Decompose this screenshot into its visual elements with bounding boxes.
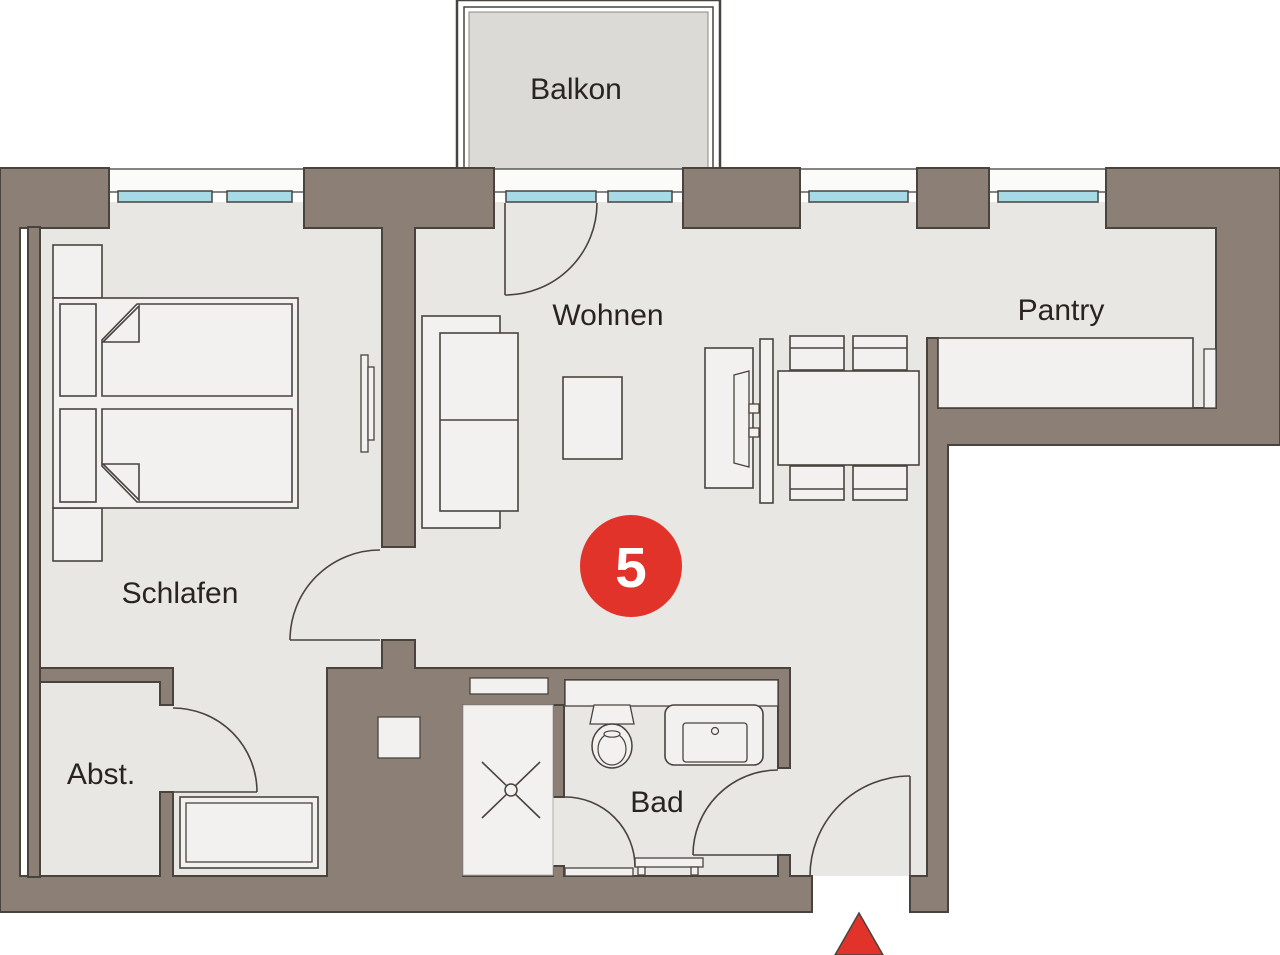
window-wohnen-icon — [809, 191, 908, 202]
wall-pier-3 — [683, 168, 800, 228]
wall-party-strip — [28, 227, 40, 877]
hall-furniture — [180, 797, 318, 868]
living-tv-icon — [734, 371, 749, 467]
tv-bracket-top — [749, 404, 759, 413]
service-shaft — [378, 717, 420, 758]
window-schlafen-right-icon — [227, 191, 292, 202]
sofa-cushions — [440, 333, 518, 511]
toilet-flush — [604, 731, 620, 737]
unit-number-badge: 5 — [580, 515, 682, 617]
kitchen-end-shelf — [1204, 349, 1216, 408]
room-divider-panel — [760, 339, 773, 503]
room-label-abst: Abst. — [67, 758, 135, 791]
bath-bench-leg-1 — [638, 867, 645, 875]
tv-bracket-bottom — [749, 428, 759, 437]
room-label-bad: Bad — [630, 786, 683, 819]
shower-threshold — [565, 868, 633, 876]
sill-pantry — [989, 169, 1106, 192]
room-label-balkon: Balkon — [530, 73, 622, 106]
room-label-pantry: Pantry — [1018, 294, 1105, 327]
wall-shower-partition — [553, 705, 564, 797]
pillow-bottom — [60, 409, 96, 502]
bath-ledge — [565, 680, 778, 706]
kitchen-counter — [938, 338, 1193, 408]
window-balcony-side-icon — [608, 191, 672, 202]
coffee-table — [563, 377, 622, 459]
bath-shelf — [470, 678, 548, 694]
window-balcony-door-icon — [506, 191, 596, 202]
bedroom-tv-bracket — [368, 367, 374, 440]
dining-table — [778, 371, 919, 465]
sink-faucet — [712, 728, 719, 735]
window-pantry-icon — [998, 191, 1098, 202]
dining-chair-3 — [790, 466, 844, 500]
bedroom-tv-icon — [361, 355, 368, 452]
bath-bench — [635, 858, 703, 867]
unit-number: 5 — [615, 536, 647, 600]
pillow-top — [60, 304, 96, 396]
dining-chair-1 — [790, 336, 844, 370]
nightstand-top — [53, 245, 102, 298]
entrance-arrow-icon — [835, 913, 883, 955]
sill-wohnen — [800, 169, 917, 192]
toilet-tank — [590, 705, 634, 724]
dining-chair-2 — [853, 336, 907, 370]
floor-plan: Balkon — [0, 0, 1280, 955]
balcony: Balkon — [457, 0, 720, 169]
nightstand-bottom — [53, 508, 102, 561]
bath-bench-leg-2 — [691, 867, 698, 875]
sill-schlafen — [109, 169, 304, 192]
shower-drain — [505, 784, 517, 796]
hall-dresser-inner — [186, 803, 312, 862]
dining-chair-4 — [853, 466, 907, 500]
room-label-wohnen: Wohnen — [552, 299, 663, 332]
room-label-schlafen: Schlafen — [122, 577, 239, 610]
pantry-furniture — [938, 338, 1216, 408]
window-schlafen-left-icon — [118, 191, 212, 202]
sill-balcony-door — [494, 169, 683, 192]
wall-pier-4 — [917, 168, 989, 228]
